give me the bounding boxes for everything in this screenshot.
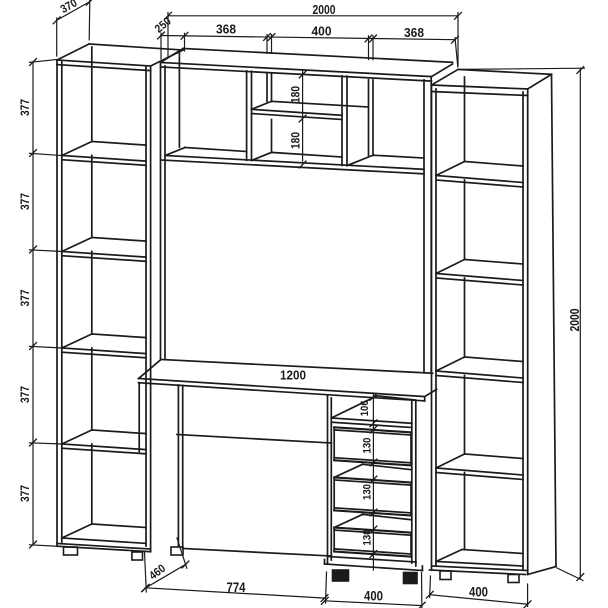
- svg-text:377: 377: [20, 386, 32, 403]
- svg-text:130: 130: [362, 438, 374, 454]
- svg-text:377: 377: [20, 193, 32, 210]
- svg-text:377: 377: [20, 485, 32, 502]
- svg-text:400: 400: [364, 587, 383, 603]
- svg-text:2000: 2000: [567, 309, 582, 332]
- svg-text:368: 368: [404, 25, 424, 40]
- svg-text:377: 377: [20, 99, 32, 116]
- svg-text:180: 180: [291, 132, 303, 149]
- svg-text:1200: 1200: [280, 368, 306, 383]
- svg-text:774: 774: [227, 579, 246, 595]
- svg-text:377: 377: [20, 290, 32, 307]
- svg-text:180: 180: [291, 86, 303, 103]
- svg-text:368: 368: [216, 22, 236, 37]
- svg-text:130: 130: [362, 484, 374, 500]
- svg-text:400: 400: [312, 23, 332, 38]
- svg-text:2000: 2000: [313, 2, 336, 17]
- svg-text:400: 400: [469, 584, 488, 600]
- svg-text:106: 106: [359, 400, 371, 416]
- svg-text:130: 130: [362, 530, 374, 546]
